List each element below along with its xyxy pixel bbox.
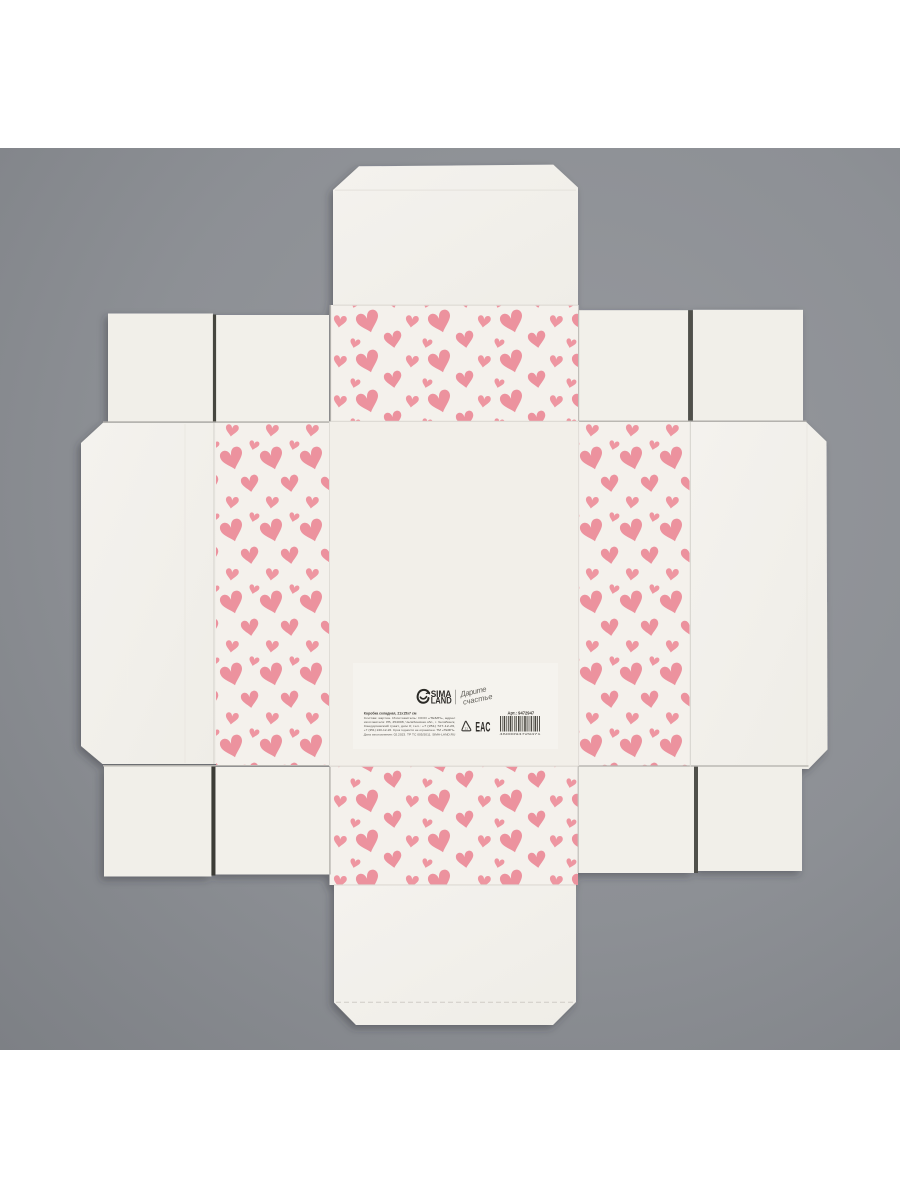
svg-text:21: 21: [465, 726, 469, 730]
svg-text:Дата изготовления: 02.2023. ТР: Дата изготовления: 02.2023. ТР ТС 005/20…: [364, 732, 456, 736]
svg-text:4600094729471: 4600094729471: [500, 732, 541, 736]
svg-text:Арт.: 9472947: Арт.: 9472947: [508, 710, 535, 715]
svg-text:LAND: LAND: [431, 696, 452, 706]
svg-text:EAC: EAC: [475, 720, 490, 735]
